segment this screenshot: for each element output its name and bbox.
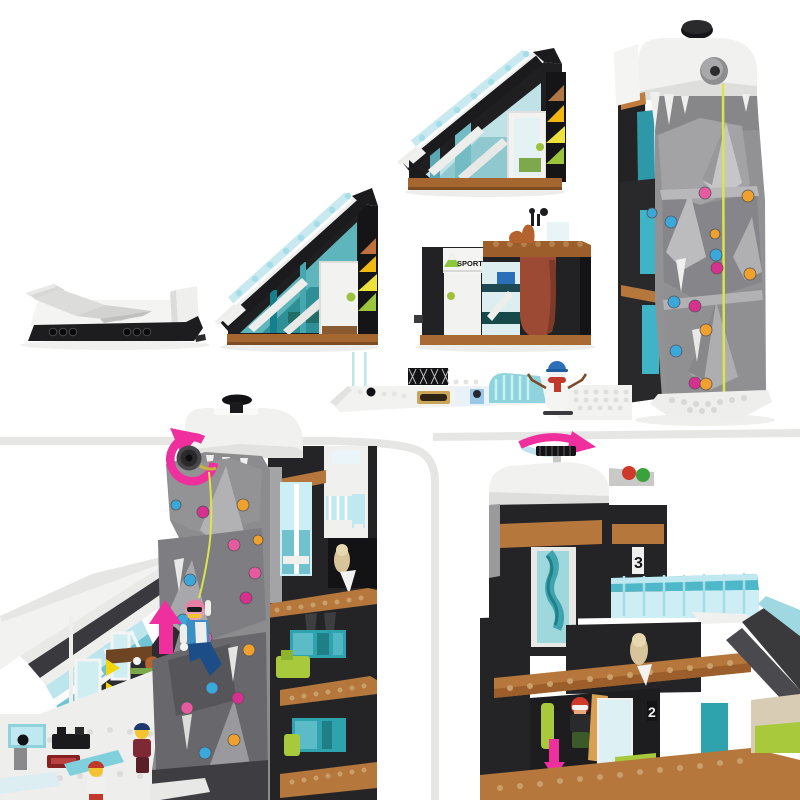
svg-text:3: 3 [634, 555, 643, 572]
svg-text:2: 2 [648, 704, 656, 720]
svg-text:SPORT: SPORT [457, 259, 483, 268]
